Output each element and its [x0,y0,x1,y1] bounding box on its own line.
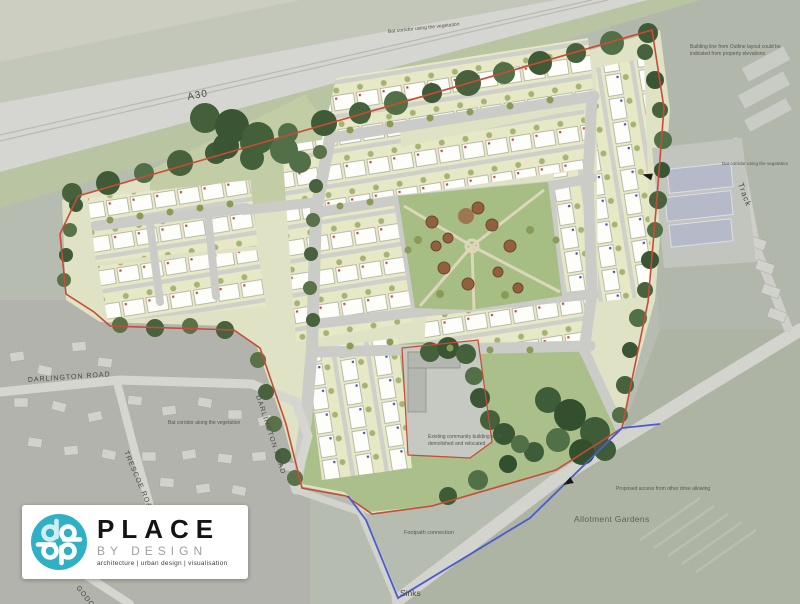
allotment-access-note: Proposed access from other drive allowin… [616,486,710,492]
footpath-note: Footpath connection [404,530,454,536]
allotment-gardens-label: Allotment Gardens [574,514,650,524]
place-by-design-logo-icon [30,513,88,571]
site-masterplan: A30 DARLINGTON ROAD DARLINGTON ROAD TRES… [0,0,800,604]
community-note-1: Existing community building to be [428,434,502,440]
brand-name-primary: PLACE [97,516,227,542]
brand-tagline: architecture | urban design | visualisat… [97,561,227,568]
west-bat-corridor-note: Bat corridor along the vegetation [168,420,240,426]
east-bat-corridor-note: Bat corridor using the vegetation [722,161,789,166]
place-by-design-logo: PLACE BY DESIGN architecture | urban des… [22,505,248,579]
sinks-label: Sinks [400,588,421,598]
building-line-note-2: indicated from property elevations [690,51,766,57]
brand-name-secondary: BY DESIGN [97,545,227,557]
building-line-note-1: Building line from Outline layout could … [690,44,781,50]
community-note-2: demolished and relocated [428,441,485,447]
play-area [458,208,474,224]
central-park [398,182,562,310]
